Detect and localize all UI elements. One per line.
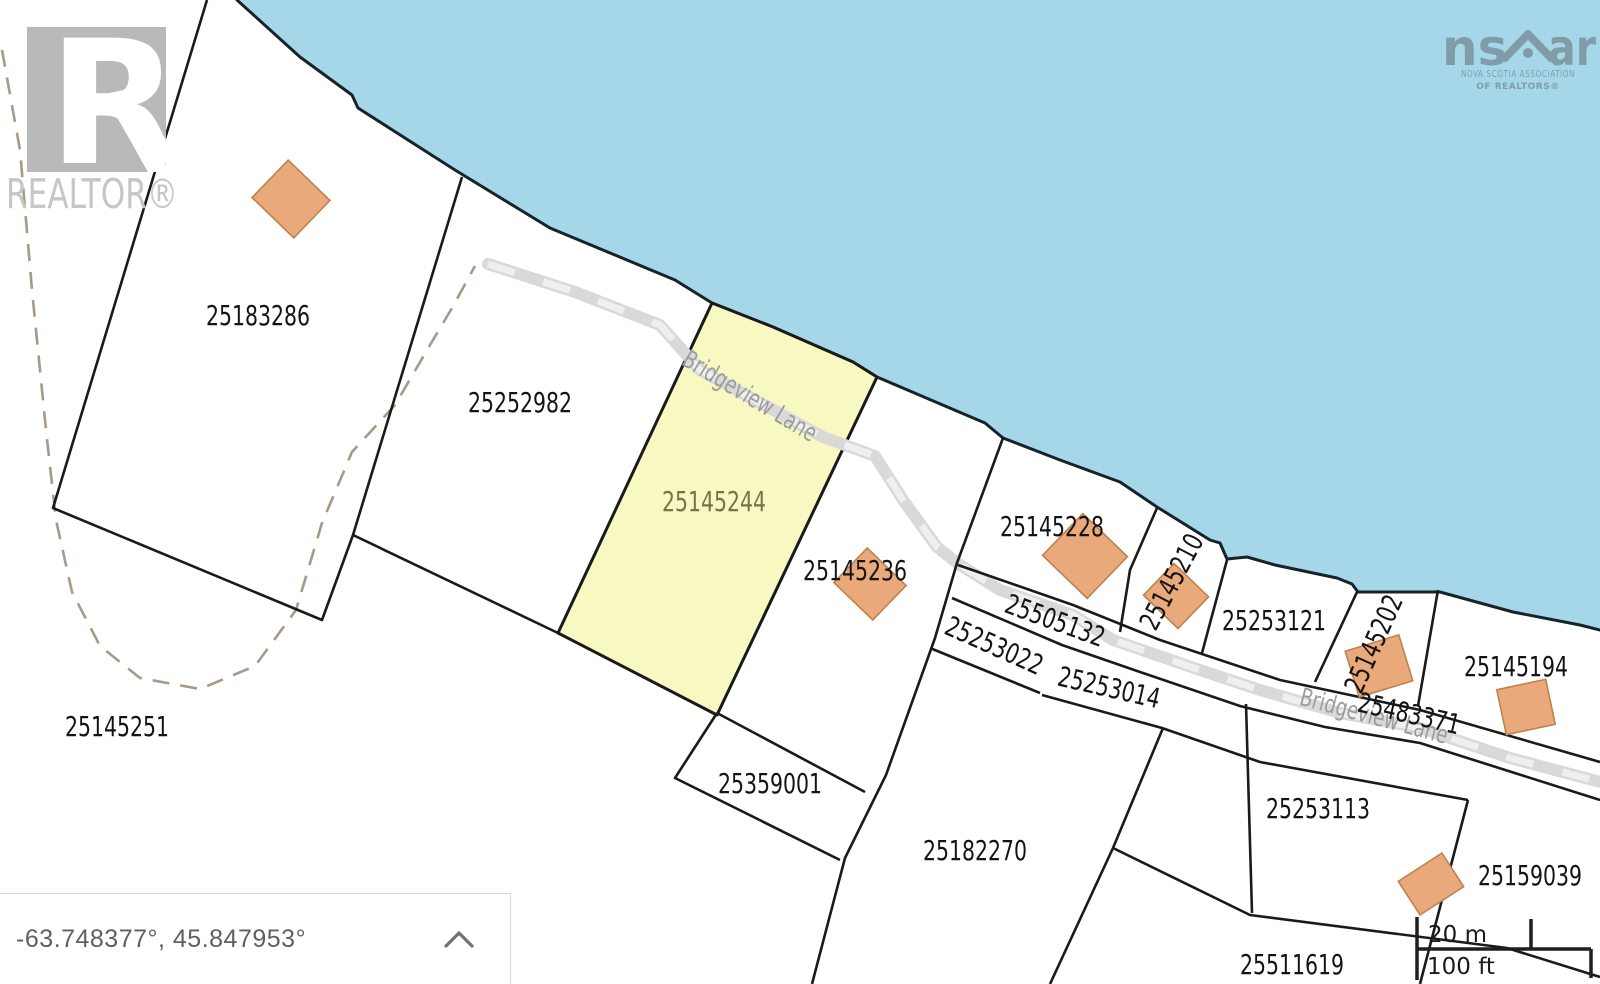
parcel-label-25359001: 25359001 (718, 768, 822, 800)
building-footprint (1398, 853, 1463, 915)
realtor-wordmark: REALTOR® (6, 170, 178, 218)
scale-metric-label: 20 m (1428, 922, 1487, 948)
chevron-up-icon (442, 929, 476, 951)
coordinate-card: -63.748377°, 45.847953° (0, 893, 511, 984)
building-footprint (1497, 679, 1555, 734)
parcel-label-25159039: 25159039 (1478, 860, 1582, 892)
parcel-label-25145251: 25145251 (65, 711, 169, 743)
parcel-label-25253113: 25253113 (1266, 793, 1370, 825)
scale-bar: 20 m 100 ft (1417, 917, 1591, 980)
parcel-label-25253121: 25253121 (1222, 605, 1326, 637)
parcel-label-25145228: 25145228 (1000, 511, 1104, 543)
map-canvas[interactable]: Bridgeview LaneBridgeview Lane 251832862… (0, 0, 1600, 984)
nsar-subline1: NOVA SCOTIA ASSOCIATION (1461, 69, 1575, 80)
realtor-watermark: R REALTOR® (6, 3, 180, 218)
nsar-subline2: OF REALTORS® (1476, 82, 1559, 92)
nsar-house-dot (1523, 48, 1533, 58)
collapse-panel-button[interactable] (436, 923, 482, 957)
parcel-label-25511619: 25511619 (1240, 949, 1344, 981)
parcel-label-25145194: 25145194 (1464, 651, 1568, 683)
map-viewport[interactable]: Bridgeview LaneBridgeview Lane 251832862… (0, 0, 1600, 984)
parcel-label-25145236: 25145236 (803, 555, 907, 587)
parcel-label-25253014: 25253014 (1055, 661, 1164, 716)
parcel-label-25252982: 25252982 (468, 387, 572, 419)
parcel-label-25145244: 25145244 (662, 486, 766, 518)
scale-imperial-label: 100 ft (1427, 954, 1495, 980)
building-footprint (252, 160, 330, 238)
coordinates-text: -63.748377°, 45.847953° (16, 925, 306, 954)
water-area (237, 0, 1600, 630)
parcel-label-25182270: 25182270 (923, 835, 1027, 867)
parcel-label-25183286: 25183286 (206, 300, 310, 332)
